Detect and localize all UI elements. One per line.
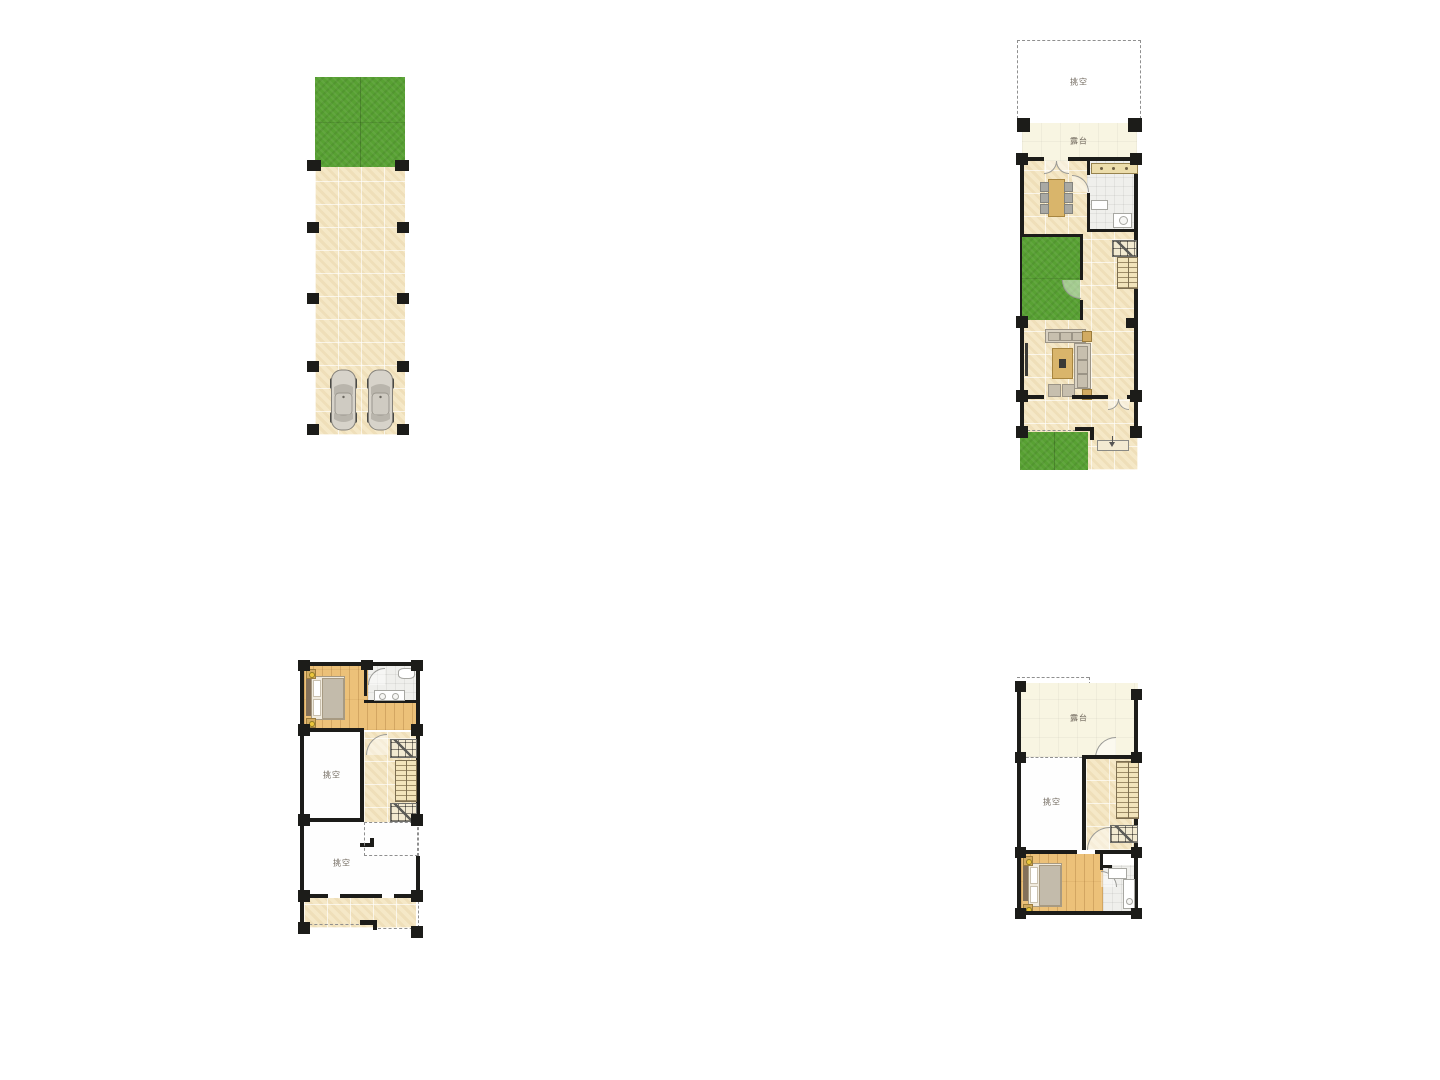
sofa-cushion — [1077, 374, 1088, 388]
wall — [300, 662, 420, 666]
column — [298, 922, 310, 934]
dining-chair — [1064, 193, 1073, 203]
column — [307, 222, 319, 233]
step-wall — [373, 920, 377, 930]
terrace-label: 露台 — [1070, 713, 1088, 724]
column — [298, 724, 310, 736]
sink-icon — [379, 693, 386, 700]
staircase — [395, 760, 417, 802]
kitchen-partition-wall — [1087, 193, 1090, 232]
column — [411, 926, 423, 938]
terrace-edge-dashed — [1021, 757, 1082, 758]
staircase — [1117, 257, 1138, 289]
sofa-cushion — [1077, 360, 1088, 374]
column — [1016, 316, 1028, 328]
bed — [1028, 863, 1062, 907]
courtyard-wall — [1080, 300, 1083, 320]
void-label: 挑空 — [323, 770, 341, 781]
column — [1017, 118, 1030, 132]
column — [307, 160, 321, 171]
column — [361, 660, 373, 670]
coffee-table — [1052, 348, 1073, 379]
plan-third-floor: 露台 挑空 — [1015, 675, 1143, 918]
burner-icon — [1112, 167, 1115, 170]
pillow — [313, 699, 321, 716]
bath-partition-wall — [364, 666, 367, 696]
dashed-roof-edge — [1017, 677, 1089, 678]
front-lawn — [315, 77, 405, 167]
burner-icon — [1100, 167, 1103, 170]
dining-chair — [1040, 204, 1049, 214]
sofa-cushion — [1060, 332, 1072, 341]
pillow — [313, 680, 321, 697]
plan-second-floor: 挑空 挑空 — [298, 660, 426, 938]
tv-console — [1025, 343, 1028, 376]
void-label: 挑空 — [1043, 797, 1061, 808]
blanket — [322, 678, 344, 719]
lawn-seam — [1054, 432, 1055, 470]
column — [411, 660, 423, 671]
side-table — [1082, 331, 1092, 342]
toilet-shower — [1123, 879, 1135, 909]
sink-icon — [392, 693, 399, 700]
column — [1130, 390, 1142, 402]
car-icon — [366, 369, 395, 431]
void-label: 挑空 — [1070, 77, 1088, 88]
small-counter — [1091, 200, 1108, 210]
column — [298, 890, 310, 902]
dining-table — [1048, 179, 1065, 217]
column — [1131, 908, 1142, 919]
blanket — [1039, 865, 1061, 906]
wall — [1017, 911, 1138, 915]
sofa-chaise — [1074, 343, 1091, 389]
dining-chair — [1040, 193, 1049, 203]
column — [1016, 426, 1028, 438]
entry-arrow-icon — [1109, 442, 1115, 447]
column — [397, 424, 409, 435]
column — [411, 724, 423, 736]
column — [411, 890, 423, 902]
dining-chair — [1064, 182, 1073, 192]
kitchen-partition-wall — [1087, 161, 1090, 175]
dining-chair — [1064, 204, 1073, 214]
column — [397, 222, 409, 233]
terrace-label: 露台 — [1070, 136, 1088, 147]
column — [1016, 153, 1028, 165]
car-icon — [329, 369, 358, 431]
lamp-icon — [1026, 859, 1032, 865]
ottoman — [1048, 384, 1061, 397]
column — [1130, 153, 1142, 165]
drain-icon — [1126, 898, 1133, 905]
wall — [1082, 759, 1086, 850]
column — [411, 814, 423, 826]
sofa-back — [1045, 329, 1086, 343]
washer-drum-icon — [1119, 216, 1128, 225]
washer — [1113, 213, 1132, 228]
wall — [1072, 395, 1108, 399]
bed — [311, 676, 345, 720]
column — [1128, 118, 1142, 132]
plan-garage-courtyard — [307, 77, 409, 435]
column — [1131, 847, 1142, 858]
entry-lawn — [1020, 432, 1088, 470]
stair-void-dashed — [364, 822, 418, 856]
utility-partition-wall — [1087, 229, 1138, 232]
dashed-edge — [304, 924, 364, 925]
column — [1015, 847, 1026, 858]
column — [1015, 752, 1026, 763]
stair-landing-grid — [390, 739, 417, 758]
dining-chair — [1040, 182, 1049, 192]
sink — [1108, 868, 1127, 879]
sofa-cushion — [1077, 346, 1088, 360]
wall — [340, 894, 382, 898]
wall — [300, 662, 304, 928]
column — [1015, 681, 1026, 692]
column — [1015, 908, 1026, 919]
courtyard-wall — [1022, 234, 1083, 237]
column — [1016, 390, 1028, 402]
column — [395, 160, 409, 171]
void-label: 挑空 — [333, 858, 351, 869]
column — [298, 660, 310, 671]
lawn-seam — [1022, 278, 1080, 279]
wall — [304, 728, 364, 732]
column — [397, 361, 409, 372]
column — [1126, 318, 1137, 328]
column — [1130, 426, 1142, 438]
sofa-cushion — [1048, 332, 1060, 341]
stair-landing-grid — [1110, 825, 1138, 843]
wall — [360, 728, 364, 818]
lawn-seam — [315, 122, 405, 123]
dashed-edge — [418, 822, 419, 856]
inner-courtyard-lawn — [1022, 237, 1080, 320]
column — [307, 424, 319, 435]
wall — [304, 818, 364, 822]
column — [298, 814, 310, 826]
stair-landing-grid — [1112, 240, 1137, 257]
staircase — [1116, 761, 1139, 819]
step-wall — [1090, 431, 1094, 440]
entry-step — [1097, 440, 1129, 451]
column — [1131, 752, 1142, 763]
lawn-edge-dashed — [1022, 430, 1076, 431]
courtyard-wall — [1080, 234, 1083, 280]
column — [397, 293, 409, 304]
lamp-icon — [309, 672, 315, 678]
table-decor-icon — [1059, 359, 1066, 368]
floorplan-sheet: { "labels": { "void": "挑空", "terrace": "… — [0, 0, 1440, 1080]
pillow — [1030, 867, 1038, 884]
column — [1131, 689, 1142, 700]
vanity — [374, 690, 405, 701]
pillow — [1030, 886, 1038, 903]
column — [307, 361, 319, 372]
sink-icon — [1125, 167, 1128, 170]
column — [307, 293, 319, 304]
plan-ground-floor: 挑空 露台 — [1015, 40, 1145, 472]
